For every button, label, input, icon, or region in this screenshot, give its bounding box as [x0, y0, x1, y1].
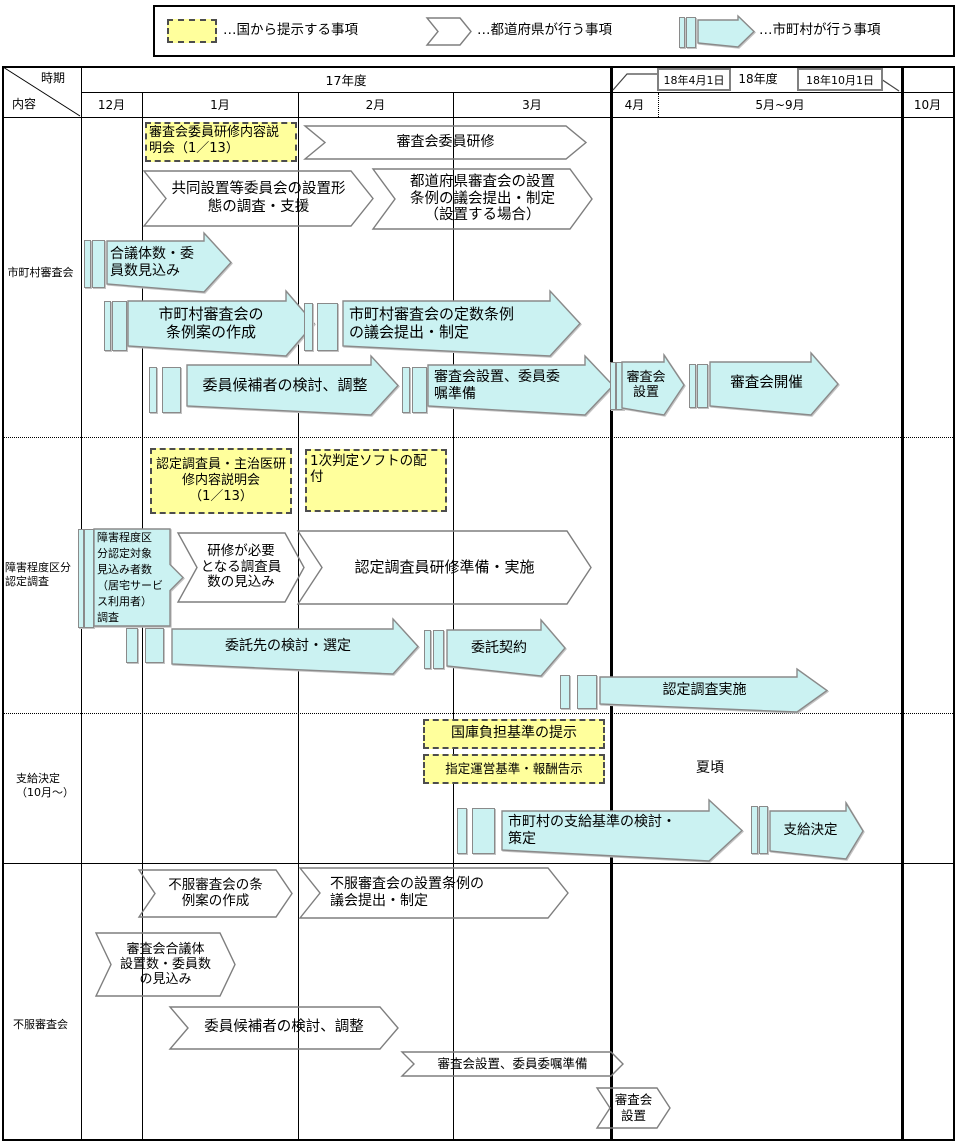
milestone-bars — [402, 367, 410, 413]
milestone-bars — [84, 240, 91, 288]
grid-line — [81, 92, 953, 93]
national-item-training-briefing: 審査会委員研修内容説 明会（1／13） — [145, 122, 297, 162]
muni-task-outsourcing-contract: 委託契約 — [447, 620, 565, 676]
schedule-diagram: …国から提示する事項 …都道府県が行う事項 …市町村が行う事項 時期 内容 17… — [0, 0, 962, 1146]
fy18-apr-boundary-line — [610, 66, 613, 1139]
milestone-bars — [424, 630, 431, 669]
pref-task-appeal-ordinance-assembly: 不服審査会の設置条例の 議会提出・制定 — [300, 868, 568, 918]
national-item-software-distribution: 1次判定ソフトの配 付 — [305, 449, 447, 512]
milestone-bars — [149, 367, 157, 413]
axis-label-content: 内容 — [2, 96, 46, 111]
grid-line — [453, 92, 454, 1139]
milestone-bars — [751, 806, 758, 854]
month-oct: 10月 — [902, 94, 953, 115]
muni-task-board-holding: 審査会開催 — [710, 353, 838, 415]
month-may-sep: 5月~9月 — [658, 94, 902, 115]
month-apr: 4月 — [611, 94, 658, 115]
milestone-bars — [317, 303, 338, 351]
callout-apr1: 18年4月1日 — [657, 68, 731, 91]
legend-municipality-label: …市町村が行う事項 — [759, 7, 949, 55]
muni-task-board-setup: 審査会 設置 — [622, 355, 684, 415]
legend: …国から提示する事項 …都道府県が行う事項 …市町村が行う事項 — [153, 5, 955, 57]
muni-task-outsourcing-review: 委託先の検討・選定 — [172, 619, 418, 674]
muni-task-body-estimate: 合議体数・委 員数見込み — [107, 233, 231, 292]
muni-task-payment-decision: 支給決定 — [770, 803, 863, 859]
national-item-operation-standard: 指定運営基準・報酬告示 — [423, 754, 605, 784]
row-separator-dotted — [4, 437, 953, 438]
muni-task-target-survey: 障害程度区 分認定対象 見込み者数 （居宅サービ ス利用者） 調査 — [94, 529, 183, 626]
grid-line — [4, 117, 953, 118]
milestone-bars — [697, 364, 708, 408]
month-mar: 3月 — [453, 94, 611, 115]
milestone-bars — [560, 675, 570, 709]
milestone-bars — [304, 303, 313, 351]
pref-task-appeal-setup: 審査会 設置 — [597, 1088, 670, 1128]
row-label-payment-decision: 支給決定 （10月～） — [16, 772, 81, 800]
milestone-bars — [145, 628, 164, 663]
legend-national-label: …国から提示する事項 — [223, 7, 423, 55]
milestone-bars — [412, 367, 427, 413]
legend-bar-icon — [686, 17, 696, 48]
national-item-survey-briefing: 認定調査員・主治医研 修内容説明会 （1／13） — [150, 448, 292, 514]
row-separator-dotted — [4, 713, 953, 714]
pref-task-surveyor-training: 認定調査員研修準備・実施 — [298, 531, 591, 604]
national-item-treasury-standard: 国庫負担基準の提示 — [423, 719, 605, 749]
fy18-header: 18年度 — [733, 70, 783, 87]
summer-note: 夏頃 — [688, 757, 732, 777]
muni-task-ordinance-draft: 市町村審査会の 条例案の作成 — [128, 291, 314, 356]
legend-prefecture-swatch — [427, 18, 471, 45]
pref-task-appeal-candidate-review: 委員候補者の検討、調整 — [170, 1007, 398, 1049]
milestone-bars — [112, 301, 127, 351]
grid-line — [298, 92, 299, 1139]
pref-task-appeal-ordinance-draft: 不服審査会の条 例案の作成 — [139, 870, 292, 917]
muni-task-survey-execution: 認定調査実施 — [600, 669, 827, 712]
muni-task-candidate-review: 委員候補者の検討、調整 — [187, 356, 398, 415]
muni-task-payment-standard: 市町村の支給基準の検討・ 策定 — [502, 800, 742, 861]
month-dec: 12月 — [81, 94, 142, 115]
month-feb: 2月 — [298, 94, 453, 115]
milestone-bars — [92, 240, 105, 288]
milestone-bars — [162, 367, 181, 413]
callout-oct1: 18年10月1日 — [797, 68, 883, 91]
muni-task-quota-ordinance: 市町村審査会の定数条例 の議会提出・制定 — [343, 291, 580, 356]
muni-task-setup-prep: 審査会設置、委員委 嘱準備 — [428, 356, 613, 415]
row-label-municipal-board: 市町村審査会 — [0, 266, 81, 280]
milestone-bars — [457, 808, 467, 854]
milestone-bars — [126, 628, 138, 663]
milestone-bars — [759, 806, 768, 854]
milestone-bars — [689, 364, 696, 408]
axis-label-time: 時期 — [30, 70, 76, 85]
milestone-bars — [104, 301, 111, 351]
fy17-header: 17年度 — [81, 68, 611, 90]
pref-task-appeal-setup-prep: 審査会設置、委員委嘱準備 — [402, 1052, 623, 1076]
legend-national-swatch — [167, 19, 217, 43]
pref-task-appeal-body-estimate: 審査会合議体 設置数・委員数 の見込み — [96, 933, 235, 996]
row-label-appeal-board: 不服審査会 — [0, 1018, 81, 1032]
pref-task-surveyor-estimate: 研修が必要 となる調査員 数の見込み — [178, 533, 304, 602]
fy18-oct-boundary-line — [901, 66, 904, 1139]
milestone-bars — [433, 630, 444, 669]
milestone-bars — [577, 675, 597, 709]
row-separator — [4, 863, 953, 864]
milestone-bars — [472, 808, 495, 854]
pref-task-joint-setup-survey: 共同設置等委員会の設置形 態の調査・支援 — [144, 171, 373, 226]
row-label-certification-survey: 障害程度区分 認定調査 — [5, 561, 81, 589]
pref-task-pref-ordinance: 都道府県審査会の設置 条例の議会提出・制定 （設置する場合） — [373, 169, 592, 229]
legend-prefecture-label: …都道府県が行う事項 — [477, 7, 687, 55]
pref-task-member-training: 審査会委員研修 — [305, 126, 586, 159]
legend-municipality-swatch — [698, 16, 754, 47]
milestone-bars — [84, 529, 94, 628]
month-jan: 1月 — [142, 94, 298, 115]
